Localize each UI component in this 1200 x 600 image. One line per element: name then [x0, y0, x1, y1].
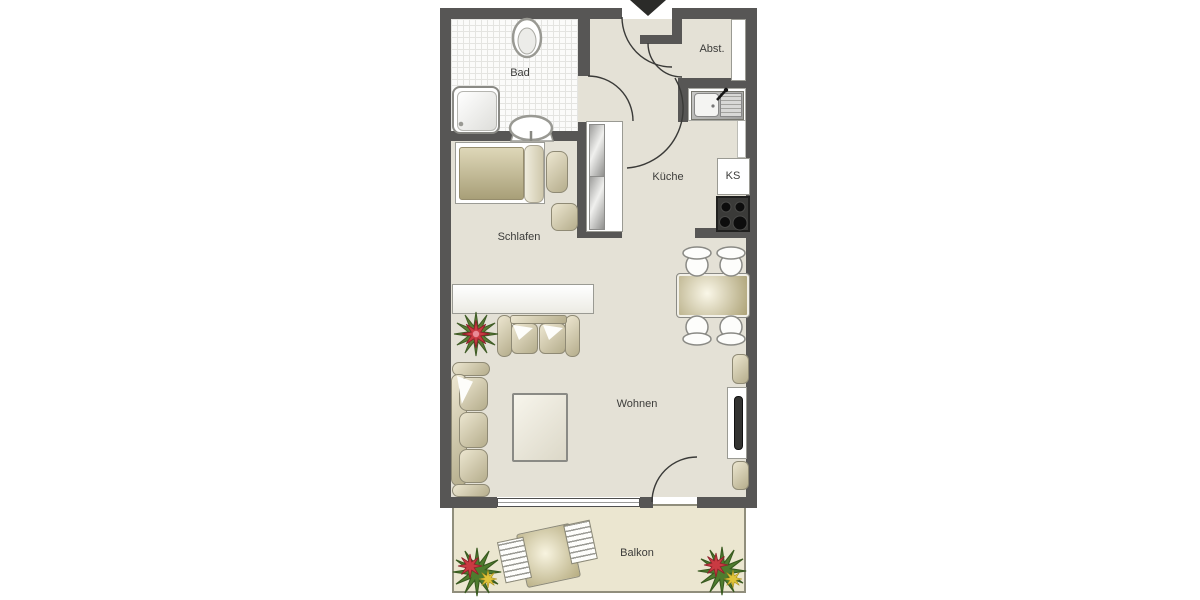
washbasin-icon	[510, 116, 553, 141]
plant-icon	[454, 312, 498, 356]
stove-burners	[720, 202, 748, 230]
room-label-balkon: Balkon	[620, 547, 654, 559]
room-label-bad: Bad	[510, 67, 530, 79]
toilet-icon	[513, 19, 541, 57]
stool-icon	[717, 247, 745, 276]
room-label-schlafen: Schlafen	[498, 231, 541, 243]
kitchen-faucet	[711, 88, 728, 108]
entrance-door-arc	[622, 17, 672, 67]
room-label-abstellraum: Abst.	[699, 43, 724, 55]
storage-door-arc	[648, 43, 682, 77]
room-label-wohnen: Wohnen	[617, 398, 658, 410]
room-label-kueche: Küche	[652, 171, 683, 183]
stool-icon	[717, 316, 745, 345]
shower-drain	[459, 122, 464, 127]
floorplan-canvas: Bad Abst. Küche KS Schlafen Wohnen Balko…	[0, 0, 1200, 600]
bathroom-door-arc	[588, 76, 633, 121]
balcony-door-arc	[652, 457, 697, 502]
stool-icon	[683, 247, 711, 276]
entrance-arrow-icon	[630, 0, 666, 16]
door-swing-arcs	[588, 17, 697, 502]
stool-icon	[683, 316, 711, 345]
plant-icon	[453, 548, 501, 596]
label-kuehlschrank: KS	[726, 170, 741, 182]
plant-icon	[698, 547, 746, 595]
plan-overlay	[0, 0, 1200, 600]
kitchen-door-arc	[627, 78, 683, 168]
